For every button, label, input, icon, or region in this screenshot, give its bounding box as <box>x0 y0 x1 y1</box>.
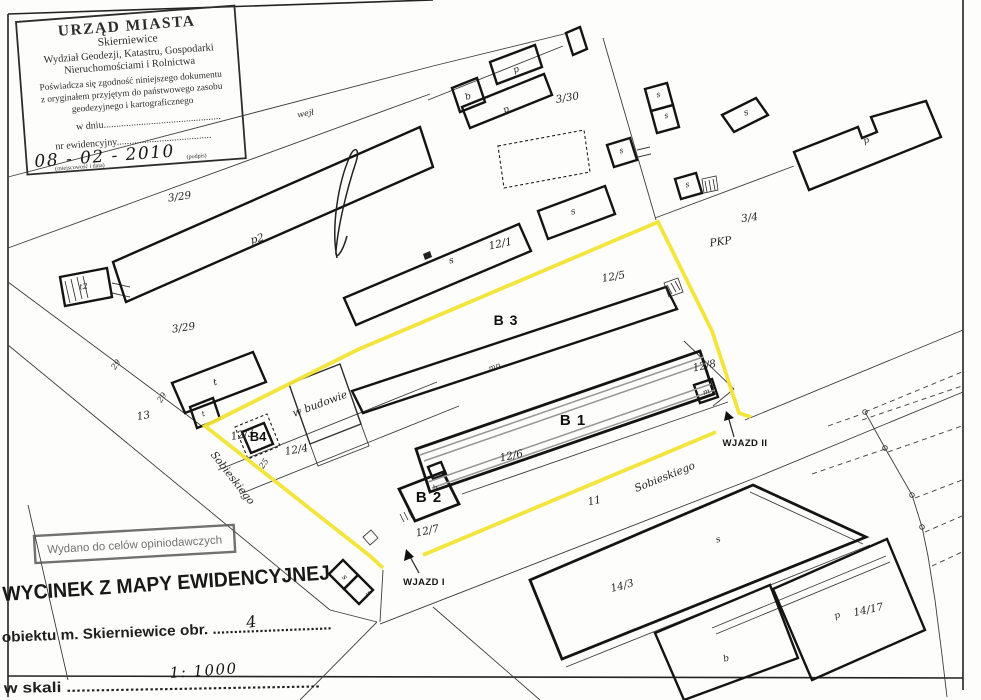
label-parcel-12-5: 12/5 <box>601 269 627 285</box>
label-building-s-small: s <box>618 146 624 156</box>
label-wjazd-2: WJAZD II <box>723 438 768 449</box>
label-number-29-a: 29 <box>109 358 123 372</box>
label-building-s-mid: s <box>570 207 578 218</box>
footer: obiektu m. Skierniewice obr. ...........… <box>2 612 332 698</box>
label-building-s-pair-1: s <box>340 572 349 581</box>
stamp-date-line: w dniu..................................… <box>76 111 221 133</box>
parcel-boundary-lines <box>8 33 963 700</box>
building-12-1-porch <box>423 251 432 260</box>
label-under-construction: w budowie <box>291 389 349 420</box>
label-parcel-12-4: 12/4 <box>284 442 309 458</box>
label-building-t2: t2 <box>79 281 88 291</box>
buildings <box>60 27 941 700</box>
label-building-s-large: s <box>714 535 722 546</box>
label-b2: B 2 <box>416 489 442 506</box>
label-parcel-14-17: 14/17 <box>852 601 884 619</box>
label-parcel-12-1: 12/1 <box>488 236 514 253</box>
label-building-p-a: p <box>512 64 521 75</box>
label-building-mp: mp <box>487 360 501 372</box>
label-parcel-12-7: 12/7 <box>415 523 441 540</box>
label-building-b-b2: b <box>432 483 439 493</box>
label-building-b-se: b <box>722 653 731 664</box>
scanned-cadastral-map-page: wejł 3/29 p2 3/29 3/30 p b p s s s p 3/4… <box>0 0 981 700</box>
label-building-t: t <box>212 378 219 389</box>
building-under-construction-ext <box>310 424 369 466</box>
building-top-small <box>566 27 587 55</box>
label-building-p2: p2 <box>249 232 265 247</box>
label-building-b-a: b <box>464 91 473 102</box>
small-diamond-marker <box>363 530 378 545</box>
building-dashed-outline <box>498 130 590 188</box>
building-p-b <box>462 74 552 128</box>
utility-dashed-lines <box>812 372 962 697</box>
building-s-hatched-annex <box>702 176 718 193</box>
label-parcel-14-3: 14/3 <box>609 577 635 595</box>
label-pkp: PKP <box>708 234 733 249</box>
footer-object-value: 4 <box>244 612 259 633</box>
map-canvas: wejł 3/29 p2 3/29 3/30 p b p s s s p 3/4… <box>0 0 981 700</box>
label-parcel-13: 13 <box>136 409 152 423</box>
label-b4: B4 <box>250 429 267 444</box>
footer-object-line: obiektu m. Skierniewice obr. ...........… <box>2 617 332 646</box>
building-b-se <box>655 585 798 700</box>
certification-stamp: URZĄD MIASTA Skierniewice Wydział Geodez… <box>16 6 246 175</box>
title-stamp: WYCINEK Z MAPY EWIDENCYJNEJ <box>2 561 331 606</box>
label-building-s-long-tr: s <box>743 108 751 119</box>
building-s-mid <box>538 186 615 239</box>
purpose-stamp: Wydano do celów opiniodawczych <box>34 525 235 563</box>
label-b3: B 3 <box>494 312 519 328</box>
label-building-s-twin-1: s <box>655 90 661 100</box>
label-wjazd-1: WJAZD I <box>403 577 445 588</box>
label-parcel-3-30: 3/30 <box>555 90 581 106</box>
title-stamp-text: WYCINEK Z MAPY EWIDENCYJNEJ <box>2 561 331 606</box>
wjazd2-arrowhead <box>724 411 734 421</box>
label-building-p-se: p <box>833 610 842 621</box>
label-wejl: wejł <box>297 108 315 120</box>
label-parcel-3-29-a: 3/29 <box>167 189 192 204</box>
label-building-s-twin-2: s <box>663 111 669 121</box>
label-b1: B 1 <box>560 412 586 429</box>
signature <box>335 150 358 258</box>
building-s-large-se <box>530 485 866 659</box>
label-building-s-hatched: s <box>684 180 690 190</box>
footer-scale-line: w skali ................................… <box>3 675 320 697</box>
label-parcel-11: 11 <box>587 494 603 509</box>
wjazd1-arrowhead <box>404 549 414 561</box>
label-building-p-large: p <box>862 135 871 146</box>
stamp-caption-sign: (podpis) <box>186 152 206 160</box>
label-building-s-12-1: s <box>448 256 456 267</box>
label-parcel-3-4: 3/4 <box>740 211 758 225</box>
label-parcel-3-29-b: 3/29 <box>171 320 196 335</box>
building-t-annex <box>190 398 220 428</box>
label-building-t-annex: t <box>200 409 207 419</box>
